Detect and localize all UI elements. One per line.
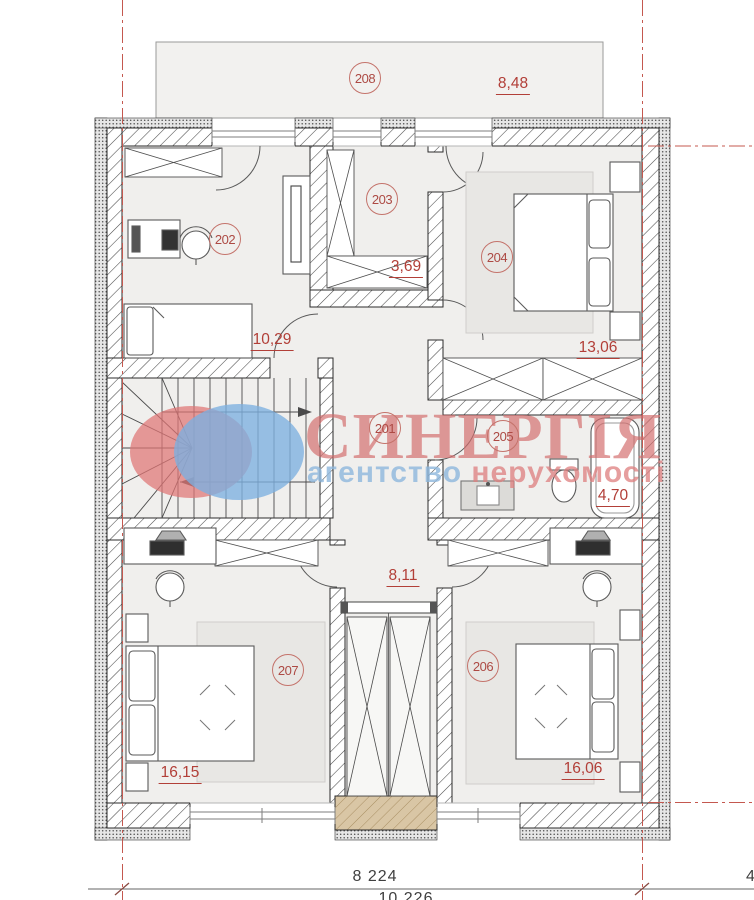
room-area-207: 16,15 [159, 764, 202, 784]
floor-plan-page: СИНЕРГІЯ агентство нерухомості 208 202 2… [0, 0, 754, 900]
room-area-206: 16,06 [562, 760, 605, 780]
floor-plan-drawing [0, 0, 754, 900]
dimension-right-partial: 4 [746, 868, 754, 886]
room-label-202: 202 [209, 223, 241, 255]
room-area-202: 10,29 [251, 331, 294, 351]
room-area-203: 3,69 [389, 258, 423, 278]
room-area-205: 4,70 [596, 487, 630, 507]
room-label-208: 208 [349, 62, 381, 94]
dimension-width-secondary: 10 226 [379, 890, 434, 900]
chimney-block [335, 796, 437, 830]
room-label-204: 204 [481, 241, 513, 273]
room-label-207: 207 [272, 654, 304, 686]
room-area-204: 13,06 [577, 339, 620, 359]
room-area-201: 8,11 [386, 567, 419, 587]
room-label-203: 203 [366, 183, 398, 215]
dimension-width-main: 8 224 [352, 868, 397, 886]
room-label-201: 201 [369, 412, 401, 444]
room-area-208: 8,48 [496, 75, 530, 95]
room-label-205: 205 [487, 420, 519, 452]
room-label-206: 206 [467, 650, 499, 682]
